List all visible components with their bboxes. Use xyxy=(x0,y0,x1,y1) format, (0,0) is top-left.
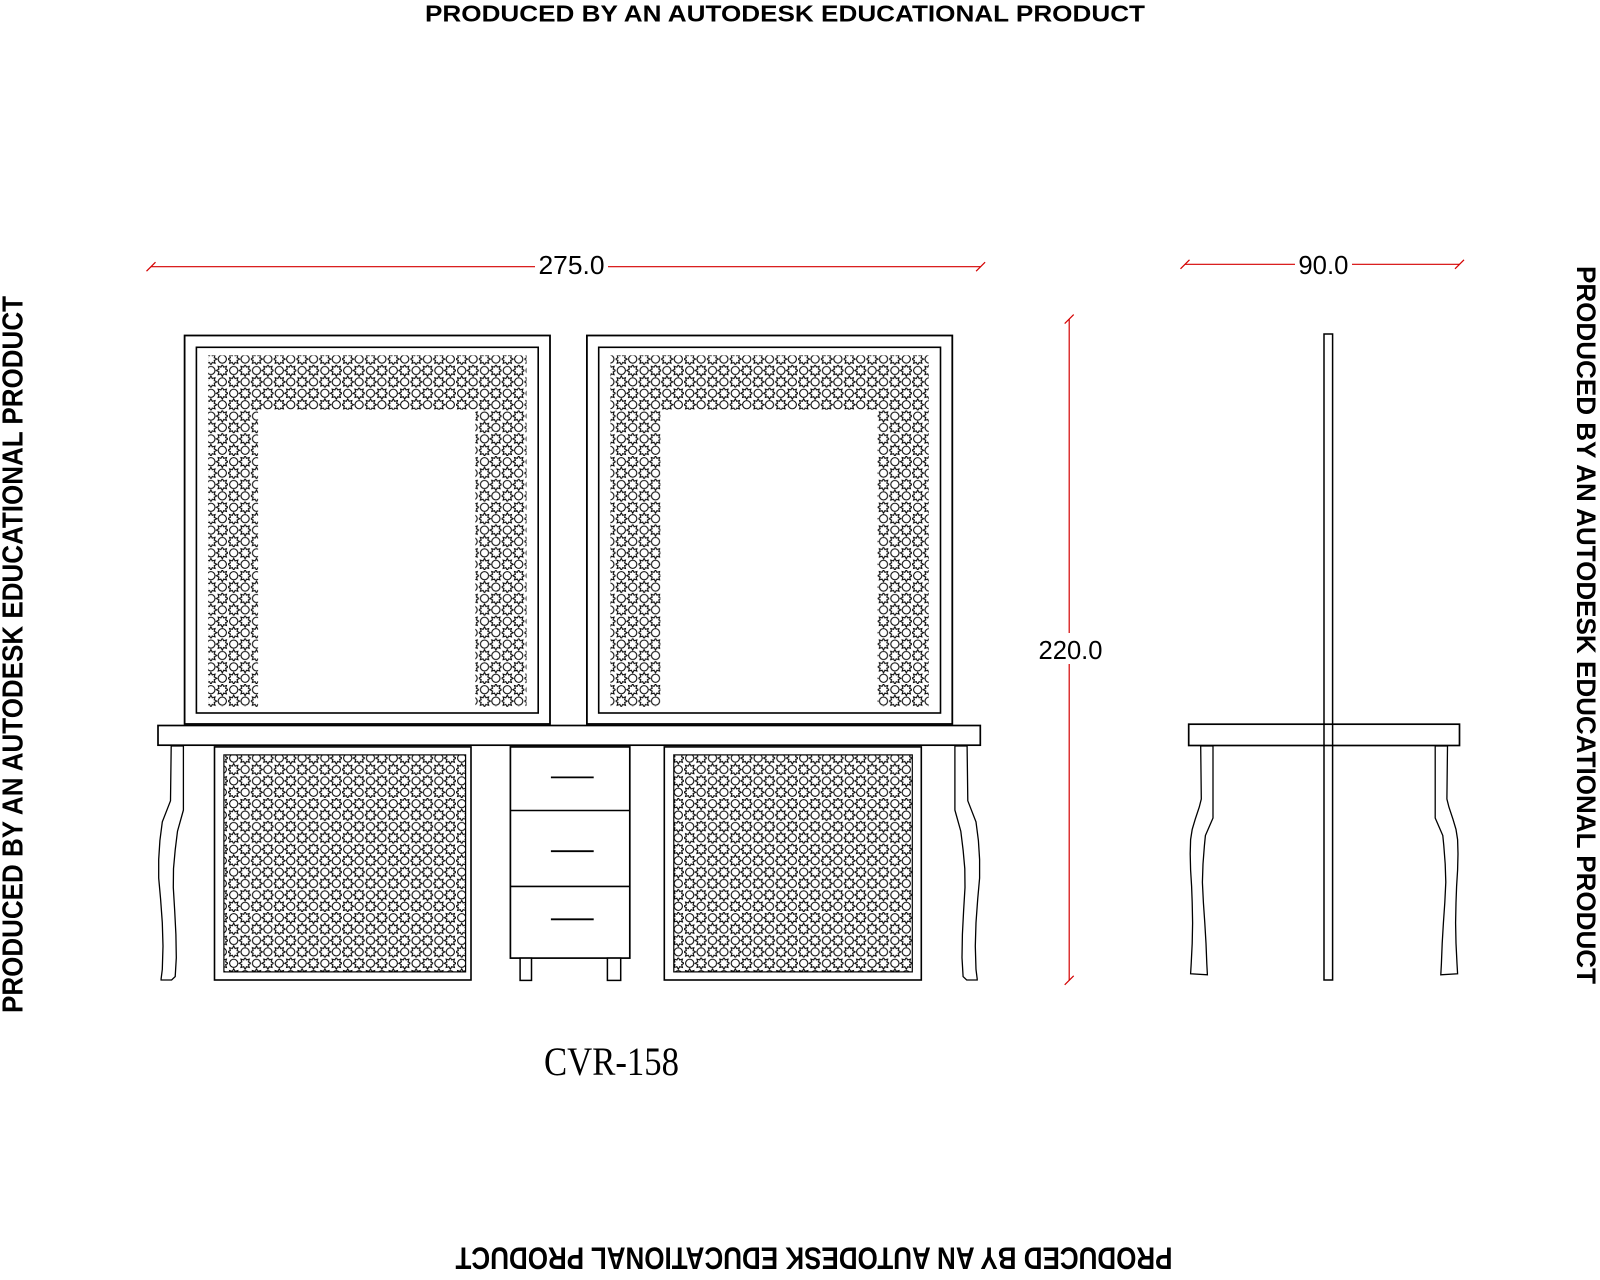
svg-text:PRODUCED BY AN AUTODESK EDUCAT: PRODUCED BY AN AUTODESK EDUCATIONAL PROD… xyxy=(456,1241,1173,1276)
svg-text:CVR-158: CVR-158 xyxy=(544,1039,679,1084)
svg-text:PRODUCED BY AN AUTODESK EDUCAT: PRODUCED BY AN AUTODESK EDUCATIONAL PROD… xyxy=(425,1,1146,27)
svg-text:PRODUCED BY AN AUTODESK EDUCAT: PRODUCED BY AN AUTODESK EDUCATIONAL PROD… xyxy=(1571,266,1600,984)
svg-text:90.0: 90.0 xyxy=(1298,252,1348,280)
svg-text:275.0: 275.0 xyxy=(539,252,605,280)
svg-text:220.0: 220.0 xyxy=(1039,637,1103,665)
svg-text:PRODUCED BY AN AUTODESK EDUCAT: PRODUCED BY AN AUTODESK EDUCATIONAL PROD… xyxy=(0,296,30,1013)
